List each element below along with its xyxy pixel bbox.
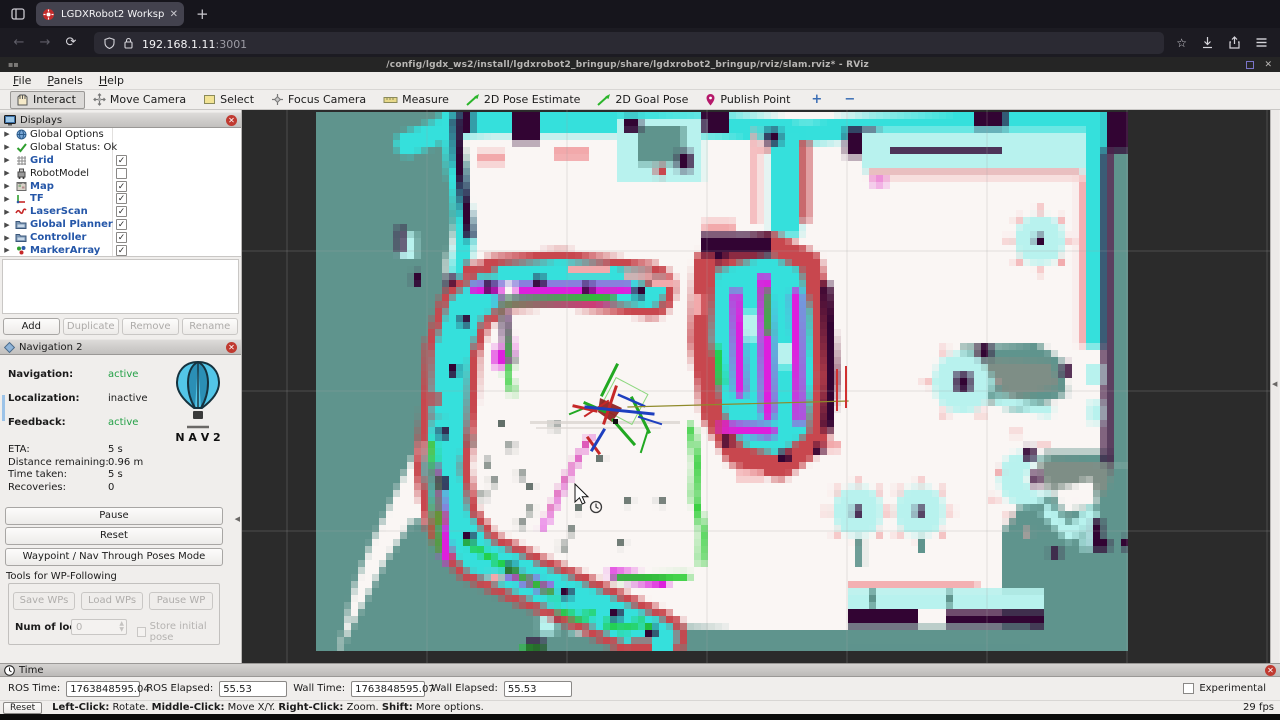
checkbox-icon[interactable]: [137, 627, 146, 637]
display-item-global-status-ok[interactable]: ▶Global Status: Ok: [0, 141, 241, 154]
folder-icon: [14, 219, 28, 230]
time-field-label: ROS Elapsed:: [146, 683, 213, 694]
expander-icon[interactable]: ▶: [0, 246, 14, 254]
nav2-panel-title: Navigation 2: [19, 342, 222, 353]
grid-icon: [14, 155, 28, 166]
nav2-status-value: active: [108, 369, 138, 380]
wp-tools-group: Save WPs Load WPs Pause WP Num of loops …: [8, 583, 220, 645]
tool-select[interactable]: Select: [197, 91, 263, 109]
panel-collapse-left-icon[interactable]: ◀: [235, 515, 240, 523]
num-loops-spinner[interactable]: 0▲▼: [71, 619, 127, 635]
svg-text:N A V 2: N A V 2: [175, 431, 220, 444]
nav2-stat-value: 0: [108, 482, 114, 493]
nav2-logo: N A V 2: [172, 359, 224, 445]
time-panel-header[interactable]: Time ✕: [0, 663, 1280, 677]
display-item-controller[interactable]: ▶Controller✓: [0, 231, 241, 244]
tool-measure[interactable]: Measure: [377, 91, 458, 109]
tool-move-camera[interactable]: Move Camera: [87, 91, 195, 109]
displays-panel-title: Displays: [20, 115, 222, 126]
expander-icon[interactable]: ▶: [0, 156, 14, 164]
nav2-status-label: Localization:: [8, 393, 80, 404]
load-wps-button[interactable]: Load WPs: [81, 592, 143, 610]
url-bar[interactable]: 192.168.1.11:3001: [94, 32, 1164, 54]
expander-icon[interactable]: ▶: [0, 169, 14, 177]
nav2-stat-value: 0.96 m: [108, 457, 143, 468]
bookmark-star-icon[interactable]: ☆: [1176, 36, 1187, 50]
robot-icon: [14, 168, 28, 179]
displays-panel-header[interactable]: Displays ✕: [0, 112, 241, 128]
add-tool-button[interactable]: +: [801, 92, 832, 107]
lock-warning-icon[interactable]: [123, 37, 134, 49]
display-item-label: MarkerArray: [30, 245, 100, 256]
display-item-label: Global Status: Ok: [30, 142, 117, 153]
displays-close-icon[interactable]: ✕: [226, 115, 237, 126]
display-checkbox[interactable]: ✓: [116, 206, 127, 217]
display-item-map[interactable]: ▶Map✓: [0, 180, 241, 193]
display-checkbox[interactable]: ✓: [116, 193, 127, 204]
focus-camera-icon: [271, 93, 284, 106]
rviz-toolbar: InteractMove CameraSelectFocus CameraMea…: [0, 90, 1280, 110]
time-panel-title: Time: [19, 665, 1261, 676]
rviz-titlebar: ▪▪ /config/lgdx_ws2/install/lgdxrobot2_b…: [0, 57, 1280, 72]
nav2-status-value: active: [108, 417, 138, 428]
check-icon: [14, 142, 28, 153]
display-item-grid[interactable]: ▶Grid✓: [0, 154, 241, 167]
nav2-stat-label: ETA:: [8, 444, 30, 455]
interact-icon: [16, 93, 29, 106]
left-panel-column: Displays ✕ ▶Global Options▶Global Status…: [0, 110, 242, 663]
wp-tools-label: Tools for WP-Following: [6, 571, 117, 582]
panel-collapse-right-icon[interactable]: ◀: [1272, 380, 1277, 388]
display-item-global-planner[interactable]: ▶Global Planner✓: [0, 218, 241, 231]
tab-title: LGDXRobot2 Workspace: [61, 9, 164, 20]
window-bottom-edge: [0, 714, 1280, 720]
publish-point-icon: [705, 93, 716, 106]
url-host: 192.168.1.11: [142, 38, 215, 51]
time-panel-body: ROS Time:1763848595.04ROS Elapsed:55.53W…: [0, 677, 1280, 700]
expander-icon[interactable]: ▶: [0, 182, 14, 190]
display-item-global-options[interactable]: ▶Global Options: [0, 128, 241, 141]
move-camera-icon: [93, 93, 106, 106]
display-item-label: RobotModel: [30, 168, 89, 179]
tool-publish-point[interactable]: Publish Point: [699, 91, 799, 109]
nav2-accent-bar: [2, 395, 5, 421]
window-icon: ▪▪: [8, 60, 19, 69]
nav2-status-value: inactive: [108, 393, 148, 404]
expander-icon[interactable]: ▶: [0, 195, 14, 203]
checkbox-icon[interactable]: [1183, 683, 1194, 694]
download-icon[interactable]: [1201, 36, 1214, 49]
menu-f[interactable]: File: [6, 73, 38, 88]
time-field-value[interactable]: 55.53: [504, 681, 572, 697]
clock-icon: [4, 665, 15, 676]
tf-axes-overlay: [316, 112, 1128, 652]
menu-icon[interactable]: [1255, 36, 1268, 49]
tool-2d-pose-estimate[interactable]: 2D Pose Estimate: [460, 91, 590, 109]
time-reset-button[interactable]: Reset: [3, 702, 42, 714]
measure-icon: [383, 95, 398, 105]
tab-close-icon[interactable]: ✕: [170, 9, 178, 20]
menu-p[interactable]: Panels: [40, 73, 89, 88]
display-checkbox[interactable]: ✓: [116, 155, 127, 166]
tool-interact[interactable]: Interact: [10, 91, 85, 109]
laser-icon: [14, 206, 28, 217]
remove-button[interactable]: Remove: [122, 318, 179, 335]
new-tab-icon[interactable]: +: [196, 5, 209, 23]
display-item-label: Global Options: [30, 129, 104, 140]
experimental-checkbox[interactable]: Experimental: [1183, 683, 1266, 694]
save-wps-button[interactable]: Save WPs: [13, 592, 75, 610]
expander-icon[interactable]: ▶: [0, 143, 14, 151]
goal-pose-icon: [597, 94, 611, 106]
browser-navbar: ← → ⟳ 192.168.1.11:3001 ☆: [0, 28, 1280, 57]
expander-icon[interactable]: ▶: [0, 208, 14, 216]
display-item-tf[interactable]: ▶TF✓: [0, 192, 241, 205]
rviz-menubar: FilePanelsHelp: [0, 72, 1280, 90]
expander-icon[interactable]: ▶: [0, 234, 14, 242]
maximize-icon[interactable]: [1246, 61, 1254, 69]
display-checkbox[interactable]: ✓: [116, 245, 127, 256]
nav2-stat-label: Time taken:: [8, 469, 67, 480]
reset-button[interactable]: Reset: [5, 527, 223, 545]
forward-icon[interactable]: →: [34, 35, 56, 50]
main-area: Displays ✕ ▶Global Options▶Global Status…: [0, 110, 1280, 663]
tab-favicon: [42, 8, 55, 21]
marker-icon: [14, 245, 28, 256]
mouse-hints: Left-Click: Rotate. Middle-Click: Move X…: [52, 702, 484, 713]
remove-tool-button[interactable]: −: [834, 92, 865, 107]
url-port: :3001: [215, 38, 247, 51]
folder-icon: [14, 232, 28, 243]
fps-counter: 29 fps: [1243, 702, 1274, 713]
display-item-laserscan[interactable]: ▶LaserScan✓: [0, 205, 241, 218]
display-checkbox[interactable]: ✓: [116, 219, 127, 230]
display-item-label: Global Planner: [30, 219, 113, 230]
time-field-value[interactable]: 1763848595.04: [66, 681, 140, 697]
select-icon: [203, 93, 216, 106]
nav2-status-label: Feedback:: [8, 417, 66, 428]
tool-2d-goal-pose[interactable]: 2D Goal Pose: [591, 91, 697, 109]
display-item-label: LaserScan: [30, 206, 88, 217]
time-field-value[interactable]: 1763848595.07: [351, 681, 425, 697]
nav2-stat-label: Distance remaining:: [8, 457, 109, 468]
menu-h[interactable]: Help: [92, 73, 131, 88]
display-item-label: TF: [30, 193, 44, 204]
display-item-label: Map: [30, 181, 54, 192]
nav2-panel-body: N A V 2 Pause Reset Waypoint / Nav Throu…: [0, 355, 241, 664]
firefox-view-icon[interactable]: [6, 3, 30, 25]
render-viewport[interactable]: [242, 110, 1270, 663]
display-checkbox[interactable]: [116, 168, 127, 179]
time-close-icon[interactable]: ✕: [1265, 665, 1276, 676]
screen: LGDXRobot2 Workspace ✕ + ← → ⟳ 192.168.1…: [0, 0, 1280, 720]
display-item-markerarray[interactable]: ▶MarkerArray✓: [0, 244, 241, 257]
display-item-label: Grid: [30, 155, 54, 166]
time-field-value[interactable]: 55.53: [219, 681, 287, 697]
tool-focus-camera[interactable]: Focus Camera: [265, 91, 375, 109]
reload-icon[interactable]: ⟳: [60, 35, 82, 50]
nav2-panel-header[interactable]: Navigation 2 ✕: [0, 339, 241, 355]
expander-icon[interactable]: ▶: [0, 130, 14, 138]
property-box[interactable]: [2, 259, 239, 314]
nav2-status-label: Navigation:: [8, 369, 73, 380]
right-edge-strip: ◀: [1270, 110, 1279, 663]
display-item-robotmodel[interactable]: ▶RobotModel: [0, 167, 241, 180]
share-icon[interactable]: [1228, 36, 1241, 49]
display-checkbox[interactable]: ✓: [116, 232, 127, 243]
pause-button[interactable]: Pause: [5, 507, 223, 525]
display-checkbox[interactable]: ✓: [116, 181, 127, 192]
status-bar: Reset Left-Click: Rotate. Middle-Click: …: [0, 700, 1280, 714]
compass-icon: [4, 342, 15, 353]
nav2-stat-value: 5 s: [108, 469, 123, 480]
displays-buttons: AddDuplicateRemoveRename: [0, 314, 241, 339]
wait-clock-icon: [588, 499, 604, 515]
time-field-label: Wall Elapsed:: [431, 683, 498, 694]
nav2-stat-value: 5 s: [108, 444, 123, 455]
nav2-stat-label: Recoveries:: [8, 482, 66, 493]
store-initial-pose-checkbox[interactable]: Store initial pose: [137, 621, 219, 643]
expander-icon[interactable]: ▶: [0, 221, 14, 229]
shield-icon[interactable]: [104, 37, 115, 49]
pose-estimate-icon: [466, 94, 480, 106]
time-field-label: ROS Time:: [8, 683, 60, 694]
rviz-window-title: /config/lgdx_ws2/install/lgdxrobot2_brin…: [19, 60, 1237, 70]
map-icon: [14, 181, 28, 192]
close-window-icon[interactable]: ✕: [1264, 60, 1272, 70]
back-icon[interactable]: ←: [8, 35, 30, 50]
time-field-label: Wall Time:: [293, 683, 345, 694]
monitor-icon: [4, 115, 16, 126]
displays-tree: ▶Global Options▶Global Status: Ok▶Grid✓▶…: [0, 128, 241, 257]
globe-icon: [14, 129, 28, 140]
nav2-close-icon[interactable]: ✕: [226, 342, 237, 353]
duplicate-button[interactable]: Duplicate: [63, 318, 120, 335]
rename-button[interactable]: Rename: [182, 318, 239, 335]
add-button[interactable]: Add: [3, 318, 60, 335]
display-item-label: Controller: [30, 232, 86, 243]
pause-wp-button[interactable]: Pause WP: [149, 592, 213, 610]
browser-tabbar: LGDXRobot2 Workspace ✕ +: [0, 0, 1280, 28]
waypoint-mode-button[interactable]: Waypoint / Nav Through Poses Mode: [5, 548, 223, 566]
browser-tab[interactable]: LGDXRobot2 Workspace ✕: [36, 2, 184, 26]
tf-icon: [14, 193, 28, 204]
